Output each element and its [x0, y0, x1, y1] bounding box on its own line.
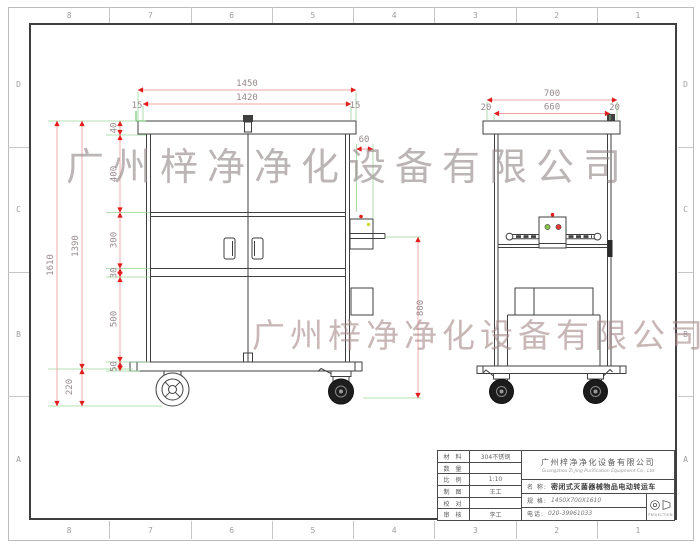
title-block-attributes: 材 料 304不锈钢 数 量 比 例 1:10 制 图 王工 校 对 审 核 李 — [438, 451, 522, 520]
dim-seg-300: 300 — [110, 232, 120, 248]
side-battery-box — [515, 288, 593, 315]
table-row: 材 料 304不锈钢 — [438, 451, 521, 463]
spec-row: 规 格: 1450X700X1610 — [522, 494, 646, 508]
side-control-box — [539, 213, 566, 248]
table-row: 审 核 李工 — [438, 509, 521, 520]
lid-latch-side — [607, 114, 615, 121]
dim-seg-30: 30 — [110, 268, 120, 279]
title-block: 材 料 304不锈钢 数 量 比 例 1:10 制 图 王工 校 对 审 核 李 — [437, 450, 675, 521]
company-cell: 广州梓净净化设备有限公司 Guangzhou Zi Jing Purificat… — [522, 451, 674, 480]
dim-seg-400: 400 — [110, 166, 120, 182]
dim-height-1610: 1610 — [46, 254, 56, 276]
dim-offset-15-left: 15 — [132, 101, 143, 111]
projection-symbol-icon — [649, 498, 673, 512]
table-row: 数 量 — [438, 463, 521, 475]
front-battery-box — [351, 288, 373, 315]
approved-by-label: 审 核 — [438, 509, 470, 520]
dim-height-220: 220 — [65, 379, 75, 395]
projection-cell: PROJECTION — [647, 494, 674, 520]
phone-row: 电话: 020-39961033 — [522, 508, 646, 521]
drawn-by-label: 制 图 — [438, 486, 470, 497]
front-right-caster — [318, 369, 354, 405]
lid-latch — [243, 115, 253, 122]
dim-width-700: 700 — [544, 89, 560, 99]
front-left-wheel — [156, 371, 189, 406]
dim-800: 800 — [416, 300, 426, 316]
dimensions: 1450 1420 15 15 1610 1390 220 40 400 300… — [46, 79, 620, 406]
dim-offset-15-right: 15 — [350, 101, 361, 111]
side-casters — [484, 370, 613, 404]
dim-seg-40: 40 — [110, 123, 120, 134]
drawn-by-value: 王工 — [470, 486, 521, 497]
drawing-sheet: 8 7 6 5 4 3 2 1 8 7 6 5 4 3 2 1 D C B A … — [0, 0, 700, 548]
phone-value: 020-39961033 — [548, 510, 592, 517]
indicator-yellow — [367, 223, 371, 227]
dim-offset-20-right: 20 — [609, 103, 620, 113]
company-name-en: Guangzhou Zi Jing Purification Equipment… — [542, 469, 655, 474]
product-name-row: 名 称: 密闭式灭菌器械物品电动转运车 — [522, 480, 674, 494]
quantity-label: 数 量 — [438, 463, 470, 474]
table-row: 比 例 1:10 — [438, 474, 521, 486]
scale-label: 比 例 — [438, 474, 470, 485]
material-value: 304不锈钢 — [470, 451, 521, 462]
company-name-cn: 广州梓净净化设备有限公司 — [541, 457, 655, 468]
spec-value: 1450X700X1610 — [551, 497, 601, 504]
side-view — [477, 114, 626, 404]
table-row: 制 图 王工 — [438, 486, 521, 498]
product-name-label: 名 称: — [527, 482, 547, 491]
dim-offset-20-left: 20 — [481, 103, 492, 113]
front-control-box — [350, 215, 385, 249]
spec-label: 规 格: — [527, 496, 547, 505]
checked-by-label: 校 对 — [438, 498, 470, 509]
dim-width-660: 660 — [544, 103, 560, 113]
dim-height-1390: 1390 — [71, 235, 81, 257]
product-name-value: 密闭式灭菌器械物品电动转运车 — [551, 482, 656, 492]
dim-seg-50: 50 — [110, 361, 120, 372]
quantity-value — [470, 463, 521, 474]
approved-by-value: 李工 — [470, 509, 521, 520]
material-label: 材 料 — [438, 451, 470, 462]
button-green — [545, 224, 550, 229]
scale-value: 1:10 — [470, 474, 521, 485]
door-handles — [224, 238, 263, 259]
table-row: 校 对 — [438, 498, 521, 510]
checked-by-value — [470, 498, 521, 509]
dim-width-1450: 1450 — [236, 79, 258, 89]
button-red — [556, 224, 561, 229]
dim-60: 60 — [359, 135, 370, 145]
phone-label: 电话: — [527, 509, 544, 518]
projection-label: PROJECTION — [648, 513, 673, 517]
dim-seg-500: 500 — [110, 311, 120, 327]
title-block-main: 广州梓净净化设备有限公司 Guangzhou Zi Jing Purificat… — [522, 451, 674, 520]
dim-width-1420: 1420 — [236, 93, 258, 103]
side-hinge — [608, 240, 613, 257]
indicator-red — [359, 215, 363, 219]
front-view — [130, 111, 385, 406]
